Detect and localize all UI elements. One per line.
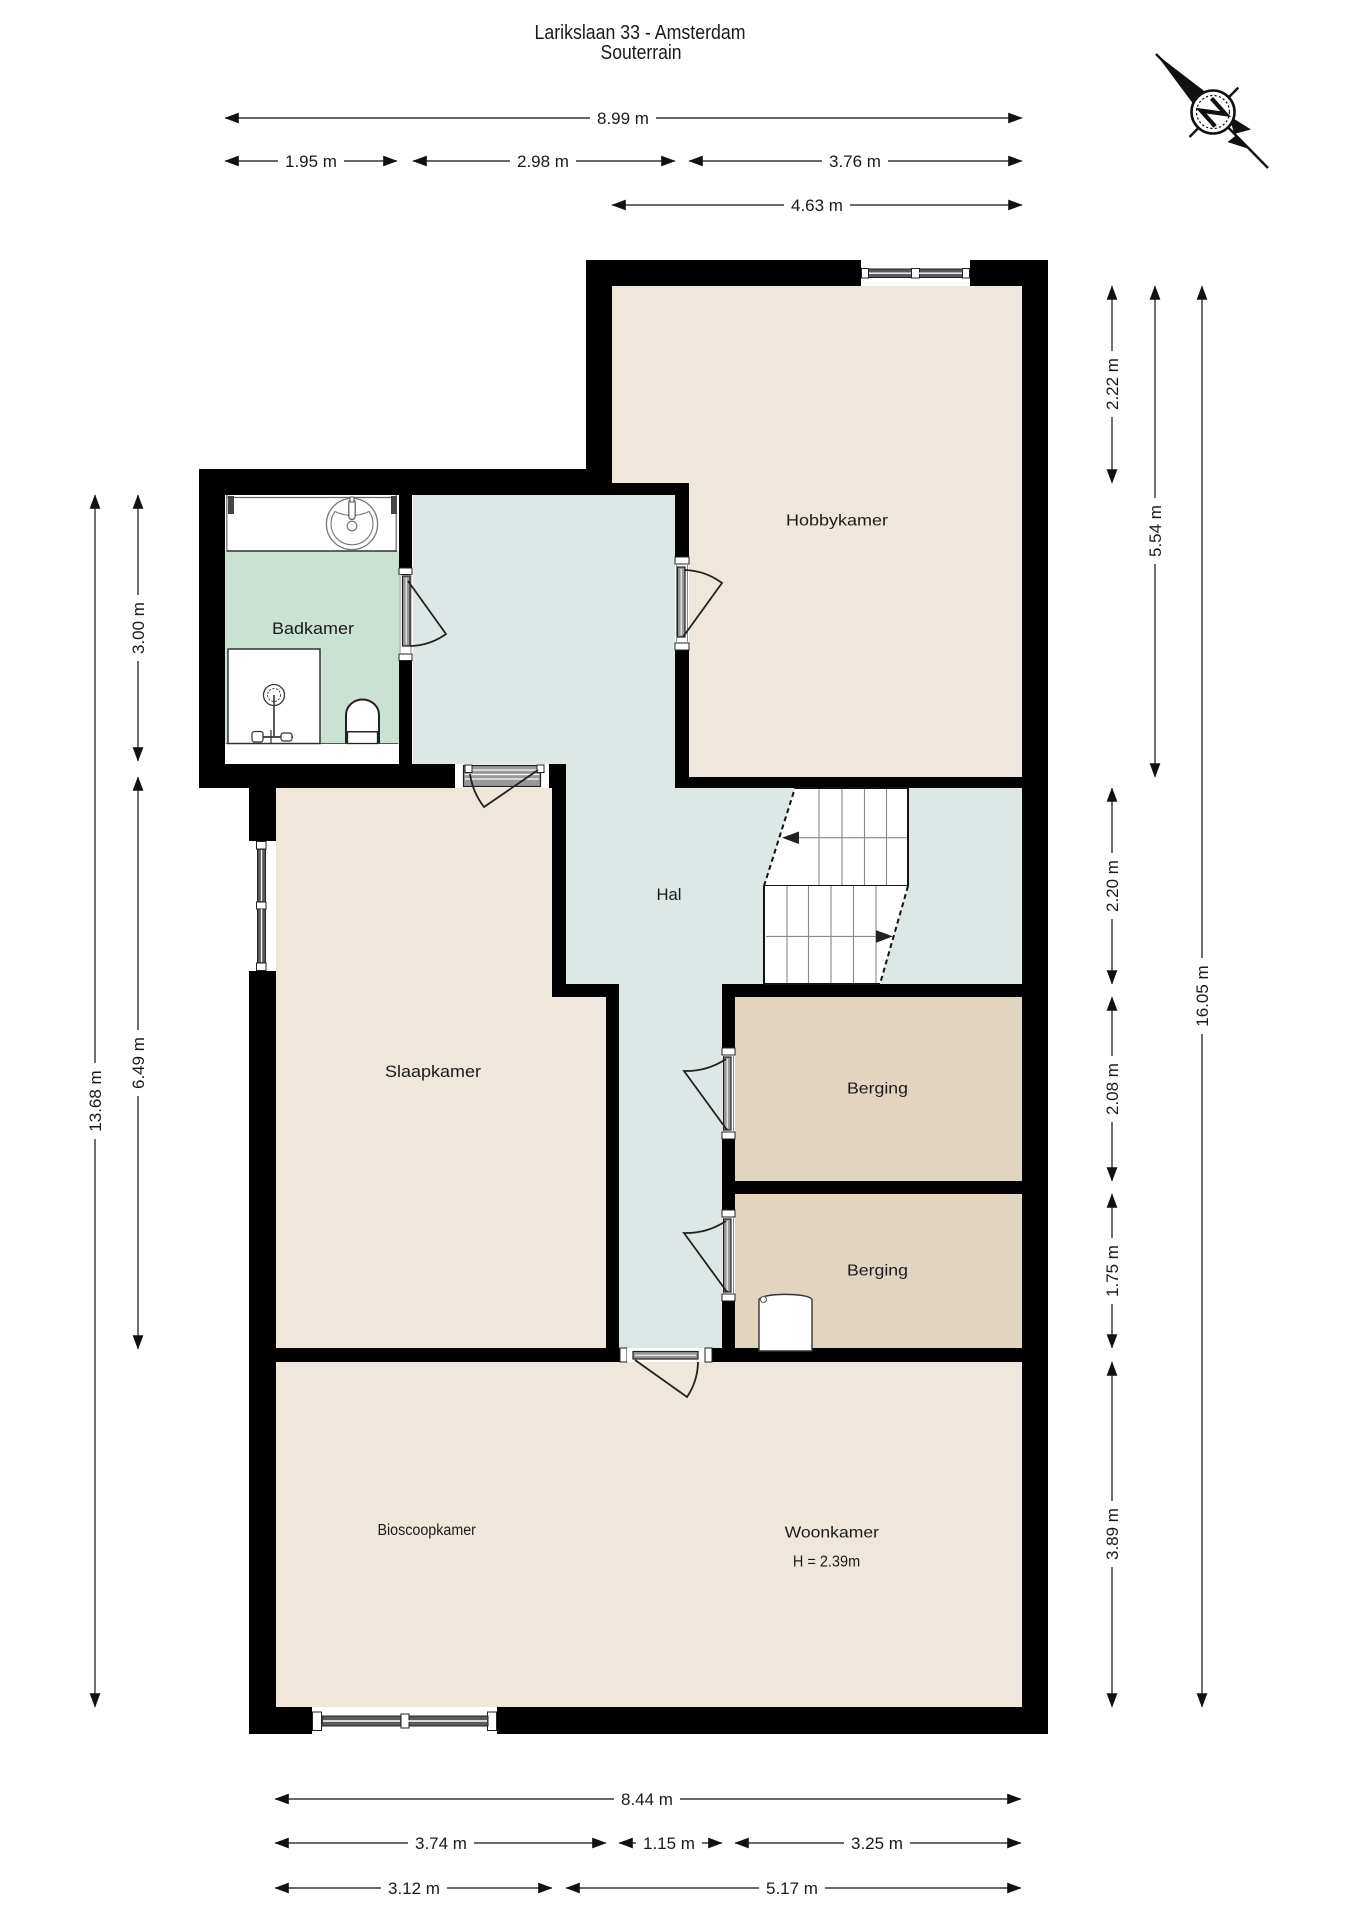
svg-text:H = 2.39m: H = 2.39m	[793, 1554, 860, 1571]
svg-text:5.54 m: 5.54 m	[1146, 505, 1165, 557]
svg-text:1.95 m: 1.95 m	[285, 152, 337, 171]
svg-text:Souterrain: Souterrain	[601, 42, 682, 64]
svg-text:3.25 m: 3.25 m	[851, 1834, 903, 1853]
svg-text:6.49 m: 6.49 m	[129, 1037, 148, 1089]
svg-text:3.76 m: 3.76 m	[829, 152, 881, 171]
svg-text:Berging: Berging	[847, 1263, 908, 1280]
svg-text:Badkamer: Badkamer	[272, 619, 354, 638]
svg-text:2.98 m: 2.98 m	[517, 152, 569, 171]
svg-text:Berging: Berging	[847, 1081, 908, 1098]
svg-text:Woonkamer: Woonkamer	[785, 1525, 880, 1542]
svg-text:3.12 m: 3.12 m	[388, 1879, 440, 1898]
svg-text:4.63 m: 4.63 m	[791, 196, 843, 215]
svg-text:2.08 m: 2.08 m	[1103, 1063, 1122, 1115]
svg-text:5.17 m: 5.17 m	[766, 1879, 818, 1898]
svg-text:Slaapkamer: Slaapkamer	[385, 1062, 481, 1081]
svg-text:Hal: Hal	[657, 885, 682, 904]
svg-text:3.89 m: 3.89 m	[1103, 1508, 1122, 1560]
svg-text:Bioscoopkamer: Bioscoopkamer	[377, 1522, 476, 1539]
svg-text:3.00 m: 3.00 m	[129, 602, 148, 654]
svg-text:16.05 m: 16.05 m	[1193, 965, 1212, 1026]
svg-text:2.20 m: 2.20 m	[1103, 860, 1122, 912]
svg-text:Larikslaan 33 - Amsterdam: Larikslaan 33 - Amsterdam	[535, 22, 746, 44]
svg-text:8.99 m: 8.99 m	[597, 109, 649, 128]
svg-text:13.68 m: 13.68 m	[86, 1070, 105, 1131]
svg-text:2.22 m: 2.22 m	[1103, 358, 1122, 410]
svg-text:8.44 m: 8.44 m	[621, 1790, 673, 1809]
svg-text:1.75 m: 1.75 m	[1103, 1245, 1122, 1297]
svg-text:Hobbykamer: Hobbykamer	[786, 513, 889, 530]
svg-text:3.74 m: 3.74 m	[415, 1834, 467, 1853]
svg-text:1.15 m: 1.15 m	[643, 1834, 695, 1853]
